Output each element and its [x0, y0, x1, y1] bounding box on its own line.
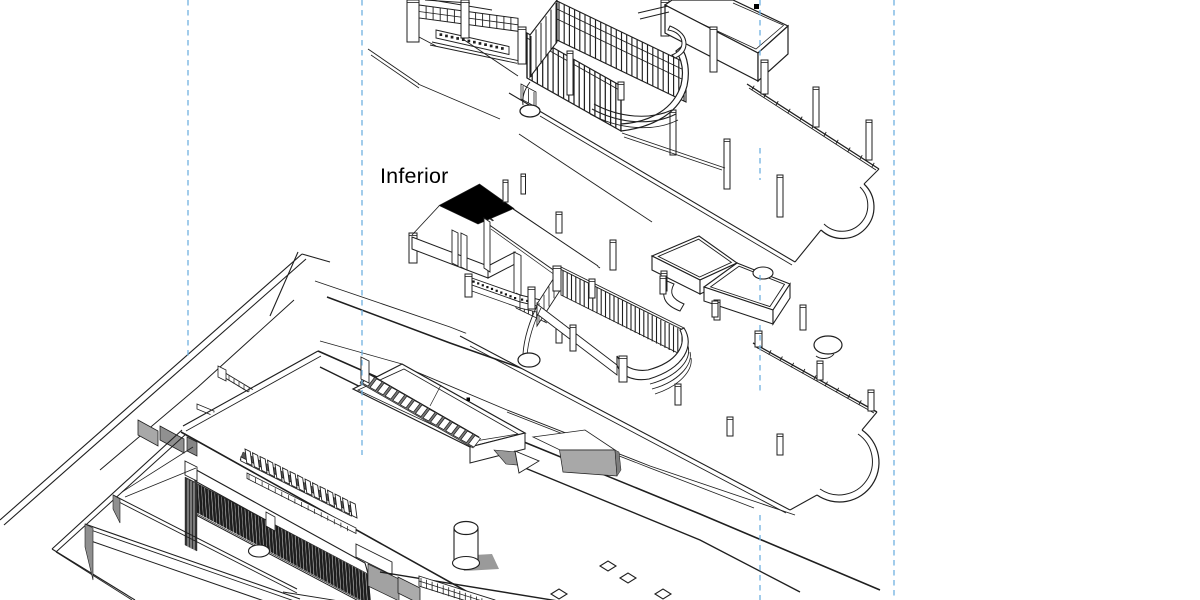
svg-text:Inferior: Inferior: [380, 164, 449, 188]
